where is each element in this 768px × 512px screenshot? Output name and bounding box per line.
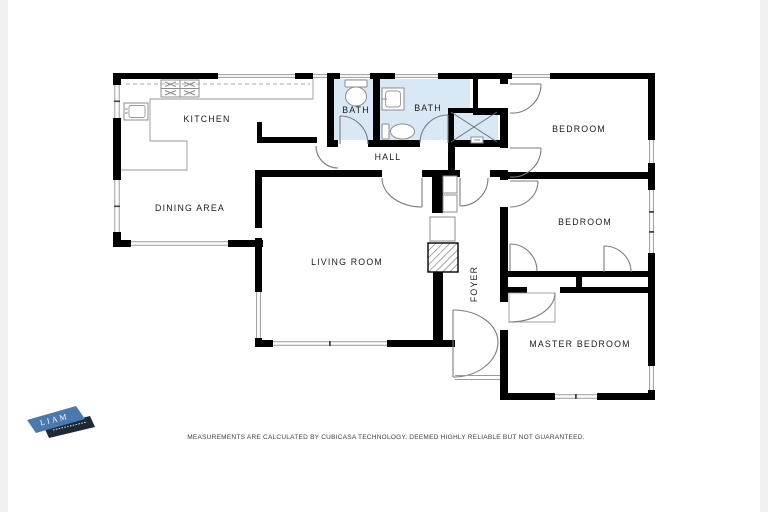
room-label-dining-area: DINING AREA [155, 203, 225, 213]
floorplan: KITCHEN DINING AREA BATH BATH HALL BEDRO… [0, 0, 768, 512]
entry-double-door [453, 310, 498, 377]
room-label-bath-2: BATH [414, 103, 442, 113]
toilet-icon [345, 80, 367, 106]
door-arc [510, 84, 541, 113]
window [648, 190, 655, 253]
fireplace-icon [428, 243, 458, 272]
door-arc [604, 246, 631, 272]
window [340, 73, 370, 79]
window [395, 73, 438, 79]
window [313, 73, 327, 79]
door-arc [316, 146, 338, 168]
door-arc [510, 181, 538, 207]
kitchen-counter [121, 79, 313, 170]
toilet-icon [382, 124, 415, 139]
window [273, 340, 387, 347]
bathroom-sink-icon [382, 88, 404, 110]
window [648, 140, 655, 163]
room-label-hall: HALL [375, 152, 402, 162]
window [555, 393, 597, 400]
window [113, 180, 121, 232]
stove-icon [161, 80, 199, 97]
window [255, 292, 262, 338]
door-arc [382, 178, 422, 207]
window [131, 240, 228, 247]
window [113, 85, 121, 118]
disclaimer-text: MEASUREMENTS ARE CALCULATED BY CUBICASA … [187, 434, 584, 441]
room-label-living-room: LIVING ROOM [311, 257, 383, 267]
door-arc [460, 178, 488, 206]
floorplan-page: KITCHEN DINING AREA BATH BATH HALL BEDRO… [0, 0, 768, 512]
room-label-kitchen: KITCHEN [183, 114, 230, 124]
room-label-foyer: FOYER [469, 266, 479, 302]
room-label-bedroom-1: BEDROOM [552, 124, 606, 134]
room-label-bath-1: BATH [342, 105, 370, 115]
room-label-bedroom-2: BEDROOM [558, 217, 612, 227]
bath2-floor-lower [380, 110, 448, 140]
window [648, 366, 655, 390]
door-arc [509, 293, 555, 322]
window [512, 73, 550, 79]
agency-logo: LIAM [27, 406, 95, 438]
room-label-master-bedroom: MASTER BEDROOM [529, 339, 630, 349]
kitchen-sink-icon [124, 103, 148, 120]
window [218, 73, 295, 79]
door-arc [510, 244, 537, 271]
